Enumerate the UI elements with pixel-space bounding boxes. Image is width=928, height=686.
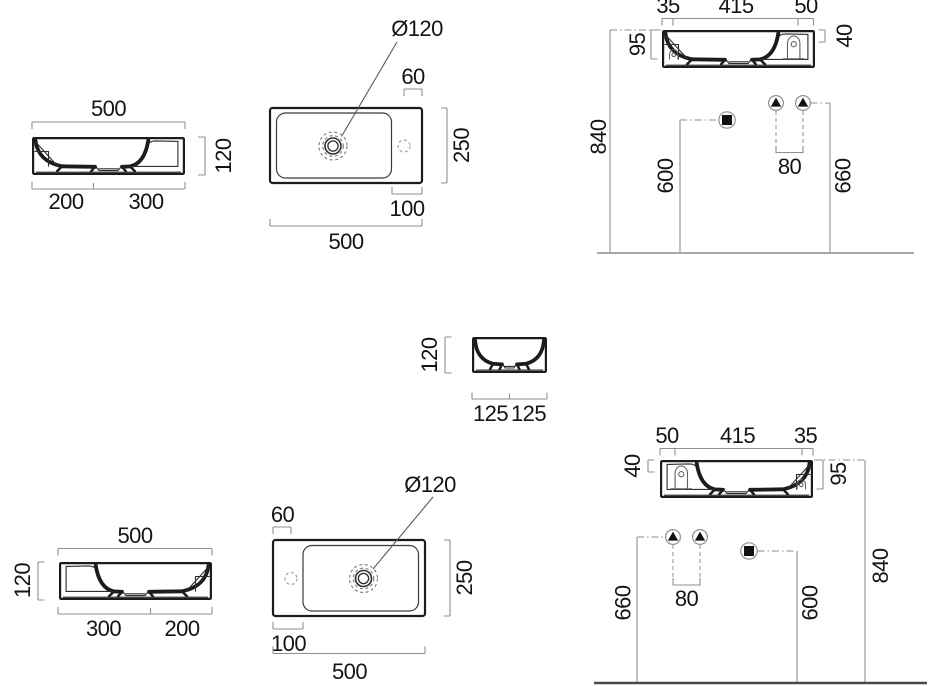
dim-label-wall-gap: 35 (794, 423, 818, 448)
dim-label-width: 500 (91, 96, 126, 121)
supply-symbol-left (666, 530, 681, 545)
dim-label-depth: 250 (449, 128, 474, 163)
dim-label-seg1: 125 (473, 401, 508, 426)
dim-label-deck-span: 50 (794, 0, 818, 18)
dim-label-seg2: 300 (129, 189, 164, 214)
dim-top-segments: 35 415 50 (656, 0, 818, 26)
dim-bottom-segments: 125 125 (472, 393, 547, 427)
dim-label-supply-spacing: 80 (778, 154, 802, 179)
dim-label-drain-height: 600 (798, 585, 823, 620)
dim-label-width: 500 (329, 229, 364, 254)
dim-label-supply-height: 660 (831, 158, 856, 193)
basin-front-outline (33, 138, 184, 174)
dim-label-front-depth: 95 (625, 33, 650, 57)
basin-front-outline (60, 563, 211, 599)
supply-symbol-right (796, 96, 811, 111)
dim-label-rim-drop: 40 (832, 24, 857, 48)
dim-bottom-segments: 300 200 (58, 607, 212, 641)
view-plan-right-deck: Ø120 60 250 100 500 (270, 16, 474, 254)
dim-label-height: 120 (211, 138, 236, 173)
view-plan-left-deck: Ø120 60 250 100 500 (271, 472, 477, 684)
dim-rim-drop: 40 (620, 454, 655, 478)
dim-label-width: 500 (332, 659, 367, 684)
technical-drawing-canvas: 500 120 200 300 Ø120 60 250 100 (0, 0, 928, 686)
dim-label-seg1: 200 (49, 189, 84, 214)
dim-bottom-segments: 200 300 (32, 182, 185, 214)
waste-outlet-symbol (719, 112, 735, 128)
dim-label-seg1: 300 (86, 616, 121, 641)
dim-label-height: 120 (10, 563, 35, 598)
dim-rim-drop: 40 (819, 24, 858, 48)
view-install-left-deck: 50 415 35 40 95 840 80 660 600 (594, 423, 927, 683)
dim-depth: 250 (444, 540, 477, 616)
dim-label-seg2: 125 (511, 401, 546, 426)
dim-label-deck-width: 100 (390, 196, 425, 221)
supply-drop-lines (673, 545, 700, 579)
dim-height: 120 (10, 562, 45, 600)
dim-label-seg2: 200 (165, 616, 200, 641)
dim-width: 500 (270, 219, 422, 254)
dim-label-height: 120 (417, 337, 442, 372)
basin-section-outline (663, 31, 814, 67)
dim-label-bowl-span: 415 (719, 0, 754, 18)
dim-tap-offset: 60 (271, 502, 295, 534)
dim-label-drain-diameter: Ø120 (391, 16, 443, 41)
dim-height: 120 (198, 137, 236, 175)
waste-outlet-symbol (741, 543, 757, 559)
dim-top-segments: 50 415 35 (655, 423, 817, 456)
view-front-right-deck: 500 120 200 300 (32, 96, 236, 214)
dim-label-drain-diameter: Ø120 (404, 472, 456, 497)
dim-width: 500 (32, 96, 185, 129)
supply-spacing-bracket (673, 578, 700, 585)
dim-deck-width: 100 (271, 622, 306, 656)
dim-label-supply-height: 660 (611, 585, 636, 620)
dim-depth: 250 (441, 108, 474, 183)
dim-label-deck-span: 50 (655, 423, 679, 448)
dim-width: 500 (58, 523, 212, 556)
dim-label-deck-width: 100 (271, 631, 306, 656)
dim-label-bowl-span: 415 (720, 423, 755, 448)
dim-label-rim-drop: 40 (620, 454, 645, 478)
view-front-left-deck: 500 120 300 200 (10, 523, 212, 641)
basin-plan-outline (273, 540, 425, 616)
dim-label-drain-height: 600 (653, 158, 678, 193)
dim-label-wall-gap: 35 (656, 0, 680, 18)
dim-label-rim-height: 840 (586, 119, 611, 154)
dim-label-rim-height: 840 (868, 548, 893, 583)
dim-label-supply-spacing: 80 (675, 586, 699, 611)
dim-label-width: 500 (118, 523, 153, 548)
basin-side-outline (473, 338, 546, 372)
view-install-right-deck: 35 415 50 95 40 840 600 80 660 (586, 0, 914, 253)
dim-label-tap-offset: 60 (271, 502, 295, 527)
dim-label-depth: 250 (452, 560, 477, 595)
dim-label-tap-offset: 60 (401, 64, 425, 89)
view-side-section: 120 125 125 (417, 337, 547, 426)
dim-height: 120 (417, 337, 452, 373)
dim-label-front-depth: 95 (826, 462, 851, 486)
supply-drop-lines (776, 111, 803, 147)
supply-symbol-right (693, 530, 708, 545)
dim-deck-width: 100 (390, 187, 425, 221)
supply-symbol-left (769, 96, 784, 111)
basin-plan-outline (270, 108, 422, 183)
basin-section-outline (661, 461, 812, 497)
dim-front-depth: 95 (625, 30, 658, 59)
technical-drawing-page: 500 120 200 300 Ø120 60 250 100 (0, 0, 928, 686)
supply-spacing-bracket (776, 146, 803, 153)
dim-tap-offset: 60 (401, 64, 425, 96)
dim-front-depth: 95 (817, 460, 852, 489)
